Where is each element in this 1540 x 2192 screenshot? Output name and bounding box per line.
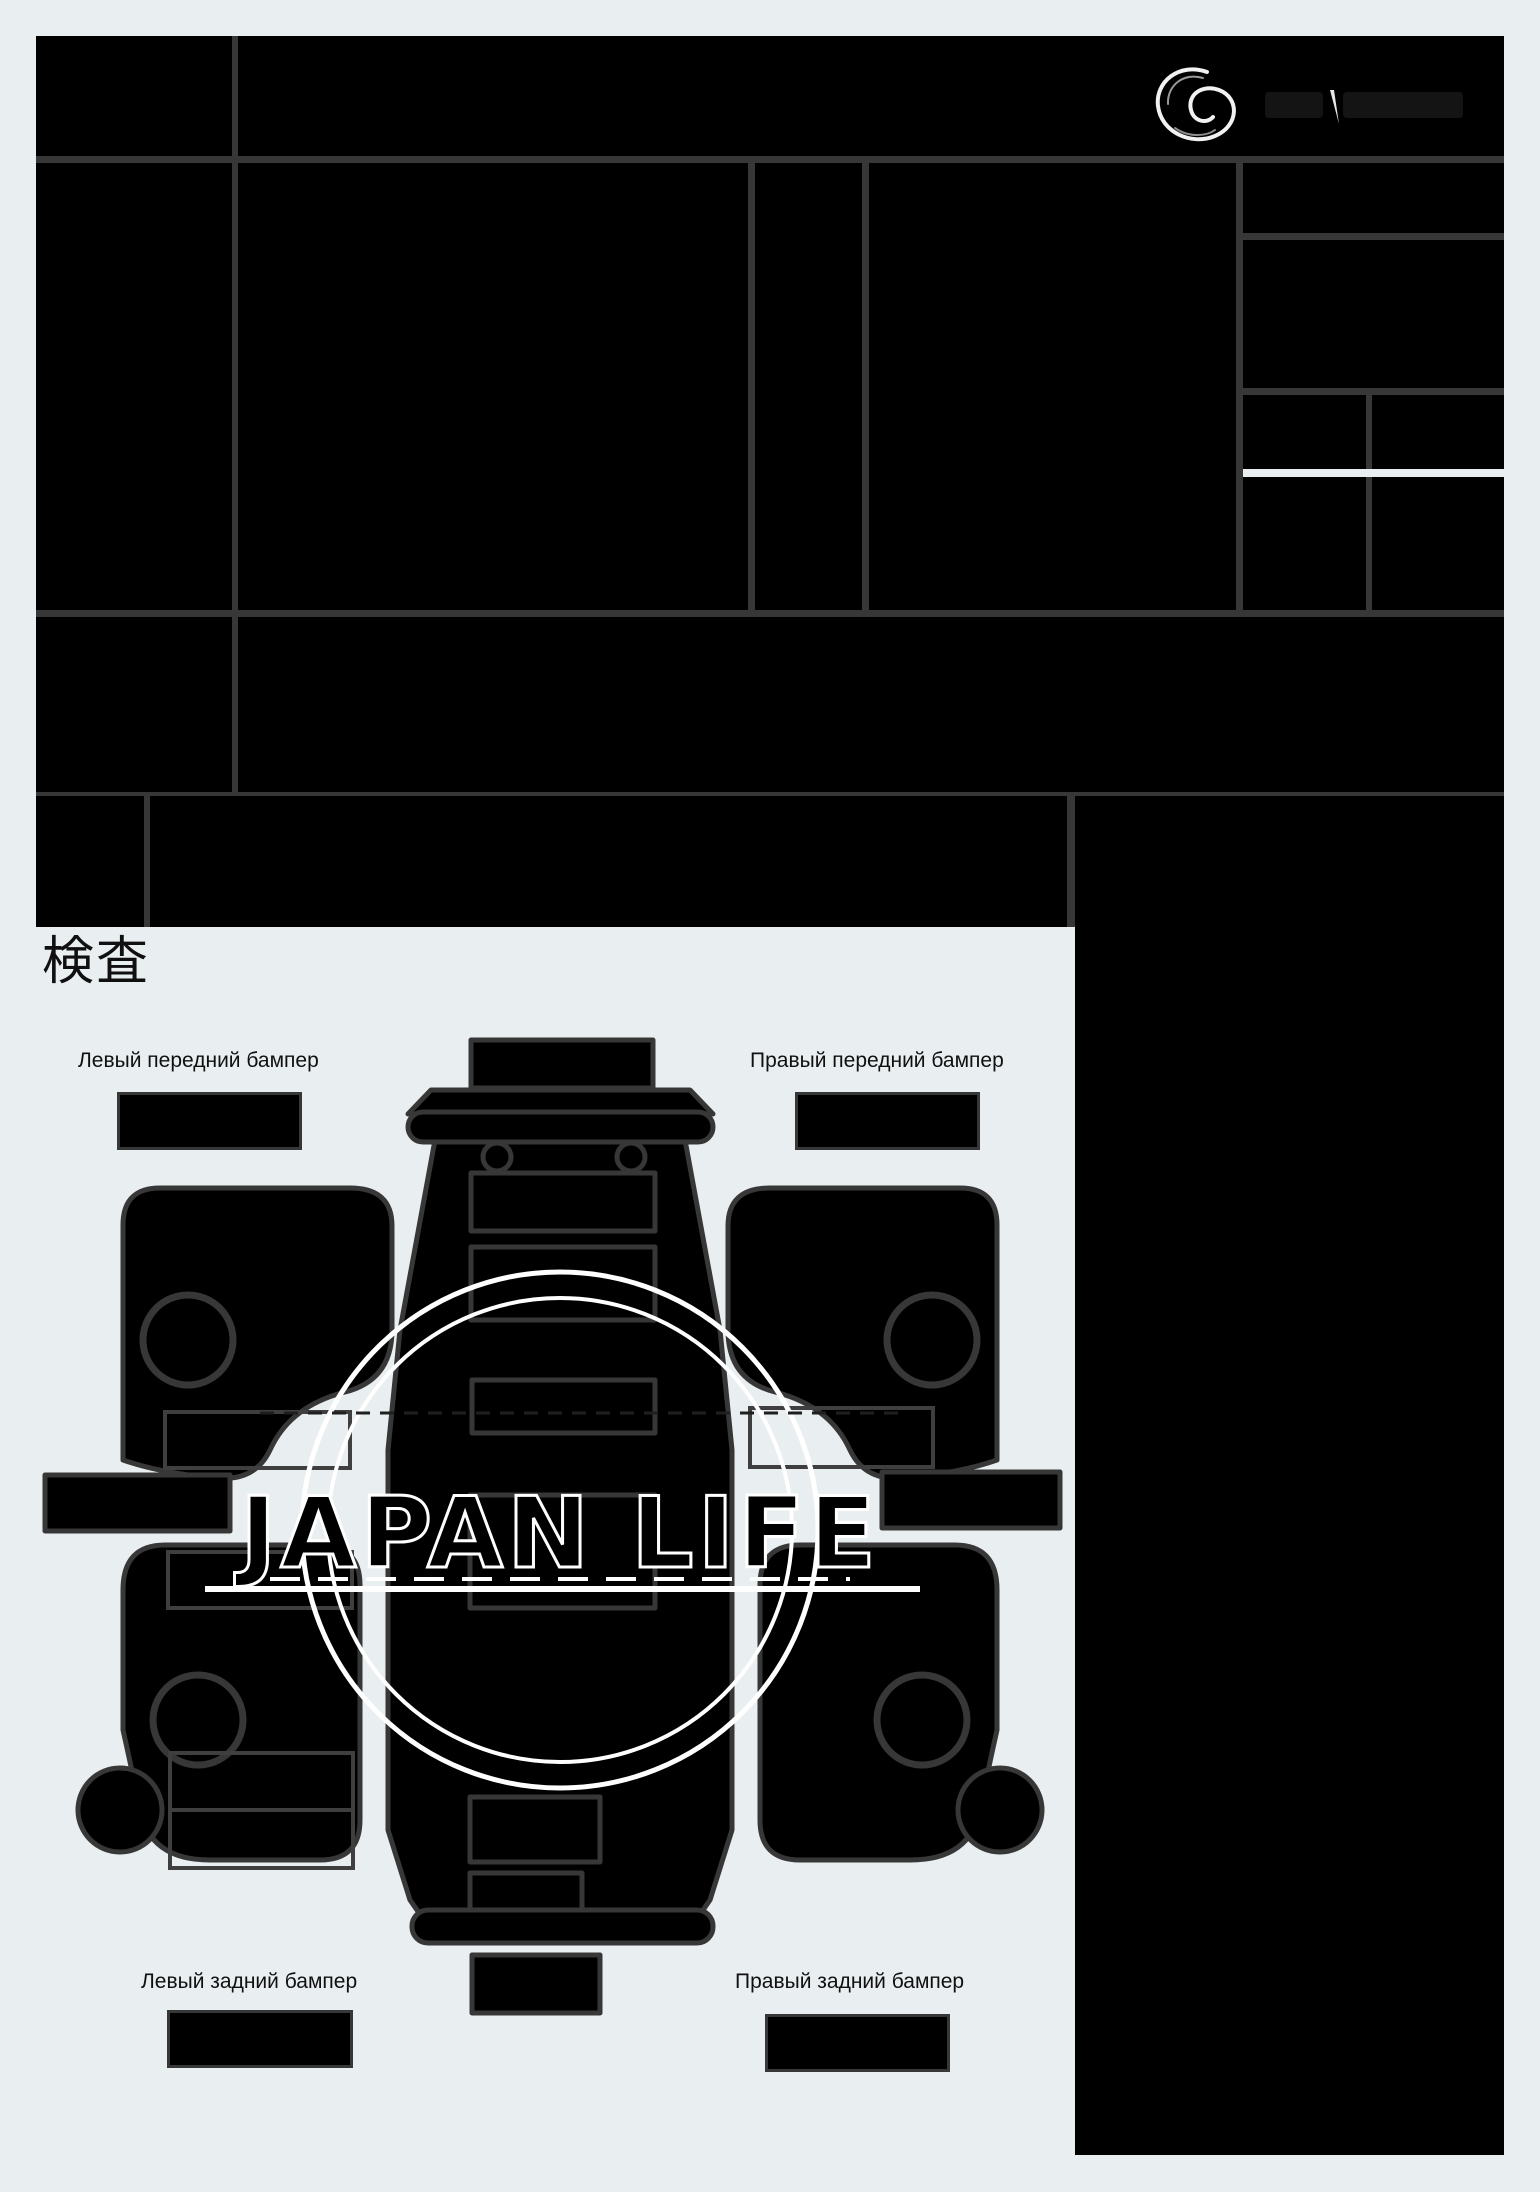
wheel-rear-right-icon bbox=[877, 1675, 967, 1765]
left-tie-bar bbox=[45, 1475, 230, 1531]
stamp-text: JAPAN LIFE bbox=[234, 1477, 880, 1591]
logo-text-highlight bbox=[1330, 90, 1339, 124]
washer-right-icon bbox=[617, 1143, 645, 1171]
inspection-heading: 検査 bbox=[42, 934, 150, 991]
label-front-right-bumper: Правый передний бампер bbox=[750, 1049, 1004, 1073]
logo-wordmark-redacted bbox=[1265, 92, 1463, 118]
report-cell-row2-c bbox=[755, 163, 862, 610]
report-cell-row4-b bbox=[150, 796, 1067, 927]
page-canvas: 検査 Левый передний бампер Правый передний… bbox=[0, 0, 1540, 2192]
report-cell-right-3a bbox=[1243, 395, 1366, 469]
car-diagram: JAPAN LIFE bbox=[20, 1030, 1100, 2180]
report-cell-row2-a bbox=[36, 163, 232, 610]
front-bumper bbox=[408, 1112, 713, 1142]
report-cell-row2-b bbox=[238, 163, 748, 610]
report-cell-right-4b bbox=[1372, 477, 1504, 610]
windshield bbox=[471, 1173, 655, 1231]
redacted-photo-panel bbox=[1075, 796, 1504, 2155]
front-plate bbox=[471, 1040, 653, 1088]
report-cell-right-2 bbox=[1243, 240, 1504, 388]
wheel-front-right-icon bbox=[887, 1295, 977, 1385]
light-divider bbox=[1243, 469, 1504, 477]
report-cell-right-3b bbox=[1372, 395, 1504, 469]
grade-box-rear-right bbox=[765, 2014, 950, 2072]
report-cell-row2-d bbox=[869, 163, 1236, 610]
wheel-front-left-icon bbox=[143, 1295, 233, 1385]
report-cell-row3-a bbox=[36, 617, 232, 792]
report-cell-right-1 bbox=[1243, 163, 1504, 233]
label-rear-left-bumper: Левый задний бампер bbox=[141, 1970, 357, 1994]
g-swirl-logo bbox=[1145, 56, 1495, 148]
label-rear-right-bumper: Правый задний бампер bbox=[735, 1970, 964, 1994]
report-cell-row4-a bbox=[36, 796, 144, 927]
grade-box-rear-left bbox=[167, 2010, 353, 2068]
spare-circle-left-icon bbox=[78, 1768, 162, 1852]
report-cell-lot bbox=[36, 36, 232, 156]
washer-left-icon bbox=[483, 1143, 511, 1171]
right-tie-bar bbox=[882, 1472, 1060, 1528]
report-table bbox=[36, 36, 1504, 927]
rear-plate bbox=[472, 1955, 600, 2013]
logo-swirl bbox=[1158, 69, 1234, 139]
grade-box-front-left bbox=[117, 1092, 302, 1150]
report-cell-row3-b bbox=[238, 617, 1504, 792]
grade-box-front-right bbox=[795, 1092, 980, 1150]
trunk-upper bbox=[470, 1797, 600, 1862]
label-front-left-bumper: Левый передний бампер bbox=[78, 1049, 319, 1073]
rear-bumper bbox=[412, 1910, 713, 1943]
report-cell-right-4a bbox=[1243, 477, 1366, 610]
roof-mid bbox=[472, 1380, 655, 1433]
spare-circle-right-icon bbox=[958, 1768, 1042, 1852]
